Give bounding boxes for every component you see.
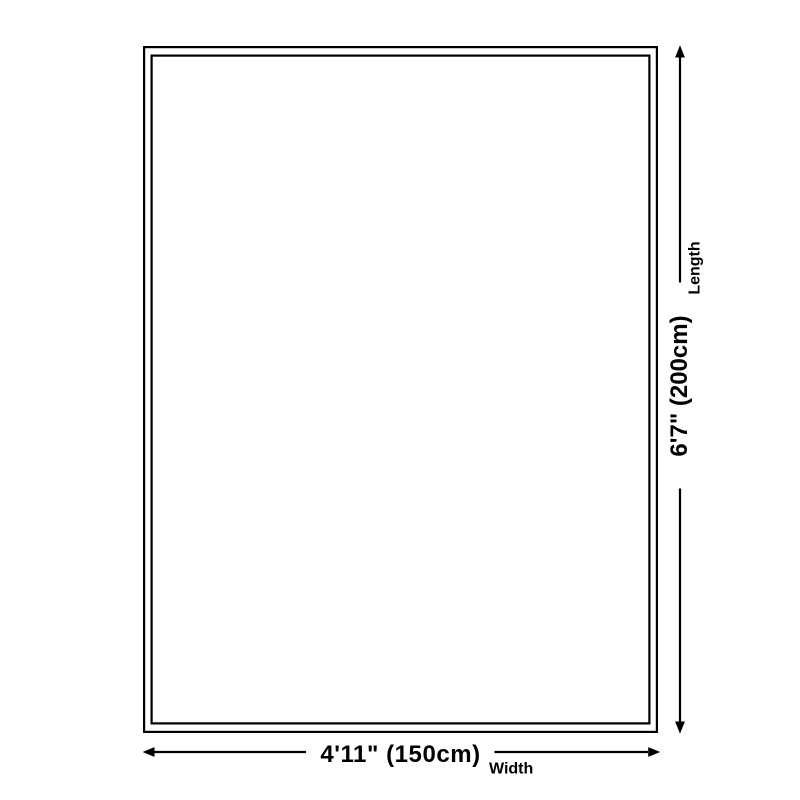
svg-text:6'7" (200cm): 6'7" (200cm) <box>666 315 693 456</box>
svg-text:Width: Width <box>489 761 533 778</box>
svg-text:Length: Length <box>687 241 704 294</box>
svg-text:4'11" (150cm): 4'11" (150cm) <box>320 741 480 768</box>
